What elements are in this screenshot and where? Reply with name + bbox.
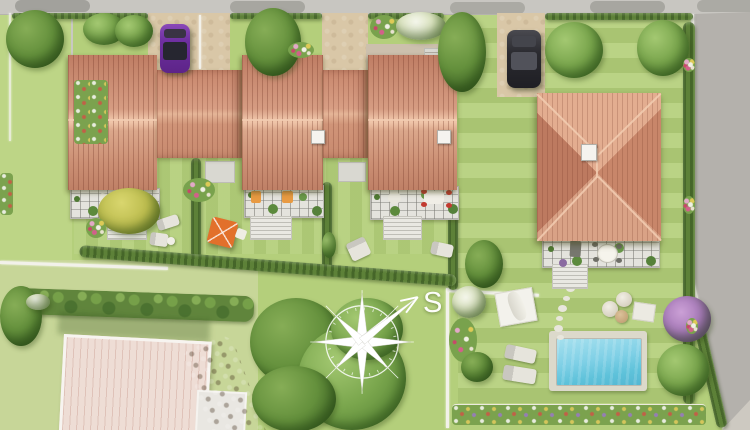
flowers-east-hedge-2 xyxy=(683,196,695,214)
flowers-garden2 xyxy=(288,42,314,58)
deck-4 xyxy=(552,264,588,289)
rear-slab-2 xyxy=(338,162,366,182)
deck-2 xyxy=(250,216,292,240)
pergola-3-vines xyxy=(374,194,380,200)
tree-garden3-east xyxy=(438,12,486,92)
terrace-2-lounger-b xyxy=(282,191,293,203)
terrace-4-round-table xyxy=(597,244,618,263)
pergola-1-vines xyxy=(74,196,80,202)
black-car-rear-window xyxy=(512,36,536,47)
pouf-2 xyxy=(616,292,632,307)
rowhouse-2-ridge xyxy=(242,119,323,121)
bush-garden2-south xyxy=(322,232,336,258)
flowerbed-round-garden1 xyxy=(86,218,106,238)
rowhouse-3-ridge xyxy=(368,119,457,121)
sun-mat xyxy=(632,302,656,323)
flowers-far-west xyxy=(0,173,13,215)
terrace-2-lounger-a xyxy=(251,191,261,203)
tree-big-garden-east xyxy=(637,20,689,76)
tree-purple-flowering xyxy=(663,296,711,342)
site-plan-rendering: S xyxy=(0,0,750,430)
purple-car-windshield xyxy=(163,42,187,60)
flowers-garden3-pink xyxy=(370,15,398,39)
black-car-windshield xyxy=(511,52,537,70)
flowers-west-border xyxy=(74,80,108,144)
flowers-garden1-east xyxy=(183,178,215,202)
deck-3 xyxy=(383,216,422,240)
flowers-east-hedge-3 xyxy=(686,318,698,334)
tree-big-garden-west xyxy=(545,22,603,78)
garage-link-2-roof xyxy=(323,70,368,158)
tree-garden2 xyxy=(245,8,301,76)
flowerbed-south xyxy=(452,404,706,425)
bush-pool-garden xyxy=(657,344,709,396)
hedge-big-garden-north xyxy=(545,13,693,20)
rowhouse-3-chimney xyxy=(437,130,451,144)
terrace-4-lounger xyxy=(569,241,581,258)
tree-white-flowering xyxy=(452,286,486,318)
bush-garden1-b xyxy=(115,15,153,47)
compass-south-label: S xyxy=(423,289,442,318)
bush-white-hedgerow xyxy=(26,294,50,310)
terrace-4-chairs xyxy=(592,242,598,247)
pergola-4-vines xyxy=(548,246,554,252)
bush-cluster-garden3 xyxy=(465,240,503,288)
terrace-3-dining-table xyxy=(424,191,444,204)
terrace-3-round-table xyxy=(388,192,401,204)
pergola-terrace-3 xyxy=(370,186,459,220)
swimming-pool xyxy=(556,338,642,386)
garden1-lounger-b xyxy=(149,232,169,247)
garage-link-1-roof xyxy=(157,70,242,158)
rowhouse-2-chimney xyxy=(311,130,325,144)
rear-slab-1 xyxy=(205,161,235,183)
tree-yellow-garden1 xyxy=(98,188,160,234)
bush-garden3-white xyxy=(396,12,446,40)
pouf-3 xyxy=(615,310,628,323)
parking-line-1 xyxy=(199,15,201,69)
grass-palm xyxy=(461,352,493,382)
rowhouse-2-roof xyxy=(242,55,323,190)
tree-northwest xyxy=(6,10,64,68)
flowers-east-hedge-1 xyxy=(683,58,695,72)
hedge-between-garden-1-2 xyxy=(191,158,201,258)
garden1-side-table xyxy=(167,237,175,245)
purple-car-rear-window xyxy=(164,29,186,38)
detached-house-chimney xyxy=(581,144,597,161)
